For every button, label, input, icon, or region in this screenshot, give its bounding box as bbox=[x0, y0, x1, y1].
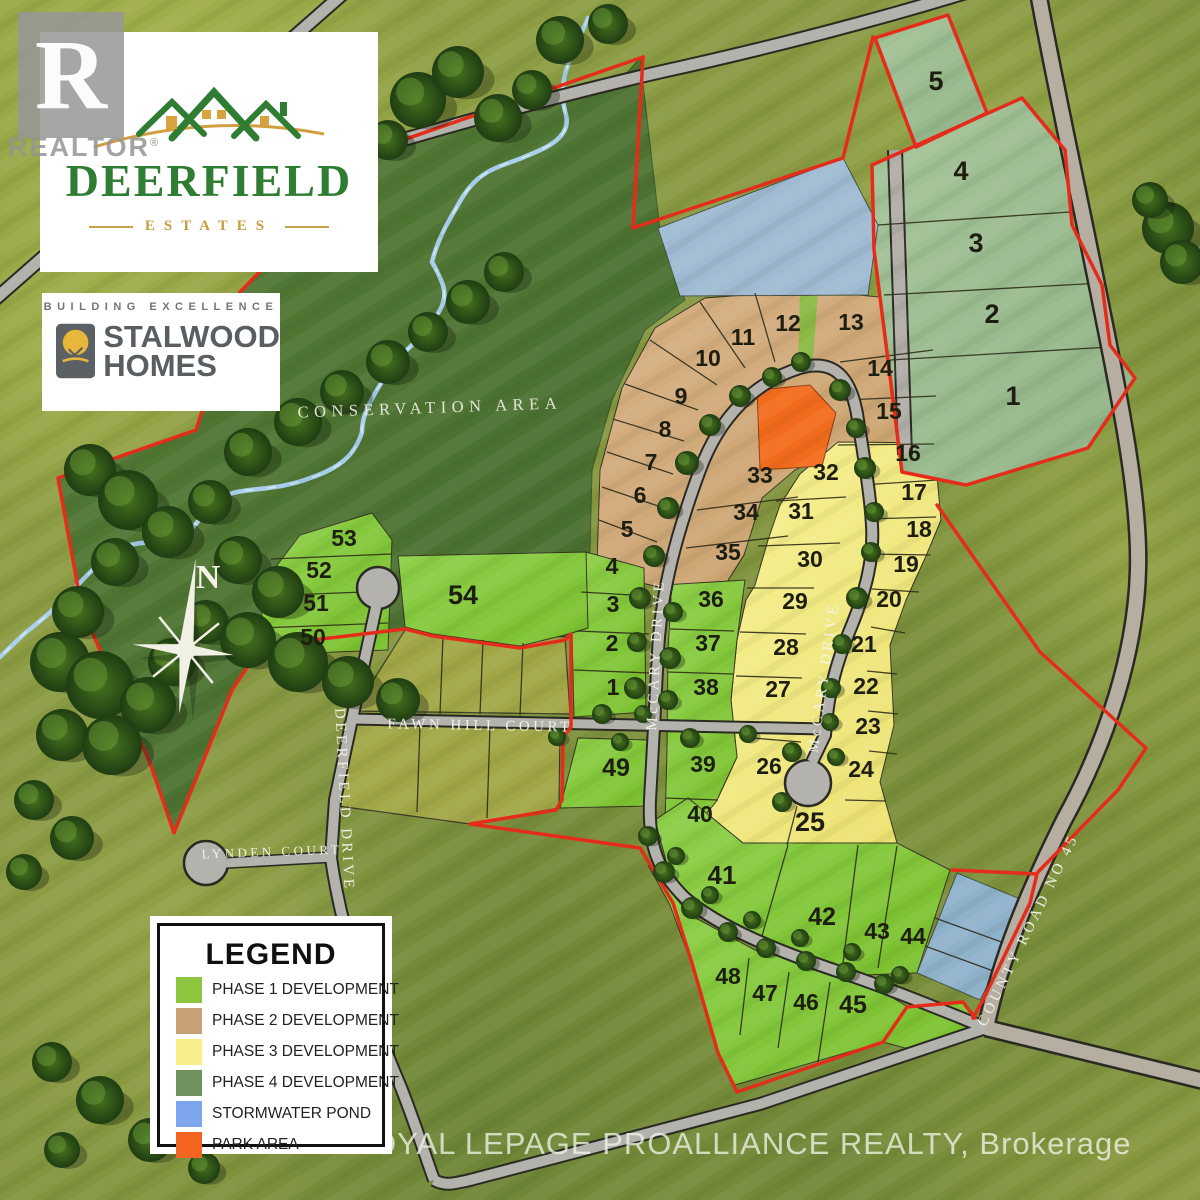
legend-item: STORMWATER POND bbox=[176, 1101, 382, 1127]
lot-number-phase3-29: 29 bbox=[782, 588, 808, 614]
legend-item: PARK AREA bbox=[176, 1132, 382, 1158]
lot-number-phase3-30: 30 bbox=[797, 546, 823, 572]
lot-number-phase2-14: 14 bbox=[867, 355, 893, 381]
legend-title: LEGEND bbox=[160, 938, 382, 972]
realtor-r-icon: R bbox=[35, 25, 107, 125]
lot-number-phase1-53: 53 bbox=[331, 525, 357, 551]
lot-number-phase1-47: 47 bbox=[752, 980, 778, 1006]
lot-number-phase2-9: 9 bbox=[675, 383, 688, 409]
lot-number-phase1-39: 39 bbox=[690, 751, 716, 777]
lot-number-phase1-4: 4 bbox=[606, 553, 619, 579]
lot-number-phase1-37: 37 bbox=[695, 630, 721, 656]
lot-number-phase2-7: 7 bbox=[645, 449, 658, 475]
lot-number-phase1-52: 52 bbox=[306, 557, 332, 583]
stalwood-tree-icon bbox=[56, 319, 95, 383]
lot-number-phase1-1: 1 bbox=[607, 674, 620, 700]
gold-rule-right bbox=[285, 226, 329, 228]
legend-item-label: STORMWATER POND bbox=[212, 1105, 371, 1123]
lot-number-phase2-10: 10 bbox=[695, 345, 721, 371]
lot-number-phase3-21: 21 bbox=[851, 631, 877, 657]
lot-number-phase4-2: 2 bbox=[984, 299, 999, 329]
legend-item: PHASE 2 DEVELOPMENT bbox=[176, 1008, 382, 1034]
lot-number-phase1-54: 54 bbox=[448, 580, 478, 610]
legend-border: LEGEND PHASE 1 DEVELOPMENTPHASE 2 DEVELO… bbox=[157, 923, 385, 1147]
lot-number-phase1-51: 51 bbox=[303, 590, 329, 616]
legend-swatch bbox=[176, 1039, 202, 1065]
legend-item: PHASE 1 DEVELOPMENT bbox=[176, 977, 382, 1003]
lot-number-phase3-28: 28 bbox=[773, 634, 799, 660]
lot-number-phase1-40: 40 bbox=[687, 801, 713, 827]
lot-number-phase1-48: 48 bbox=[715, 963, 741, 989]
realtor-logo: R bbox=[18, 12, 124, 138]
lot-number-phase3-24: 24 bbox=[848, 756, 874, 782]
lot-number-phase1-3: 3 bbox=[607, 591, 620, 617]
lot-number-phase1-50: 50 bbox=[300, 624, 326, 650]
lot-number-phase2-5: 5 bbox=[621, 516, 634, 542]
lot-number-phase2-6: 6 bbox=[634, 482, 647, 508]
legend-item: PHASE 3 DEVELOPMENT bbox=[176, 1039, 382, 1065]
lot-number-phase4-3: 3 bbox=[968, 228, 983, 258]
legend-swatch bbox=[176, 1070, 202, 1096]
legend-item-label: PHASE 3 DEVELOPMENT bbox=[212, 1043, 399, 1061]
lot-number-phase1-38: 38 bbox=[693, 674, 719, 700]
lot-number-phase3-19: 19 bbox=[893, 551, 919, 577]
lot-number-phase2-35: 35 bbox=[715, 539, 741, 565]
lot-number-phase2-8: 8 bbox=[659, 416, 672, 442]
legend-item-label: PARK AREA bbox=[212, 1136, 299, 1154]
lot-number-phase2-12: 12 bbox=[775, 310, 801, 336]
lot-number-phase4-1: 1 bbox=[1005, 381, 1020, 411]
lot-number-phase1-43: 43 bbox=[864, 918, 890, 944]
brokerage-credit: ROYAL LEPAGE PROALLIANCE REALTY, Brokera… bbox=[320, 1126, 1160, 1162]
legend: LEGEND PHASE 1 DEVELOPMENTPHASE 2 DEVELO… bbox=[150, 916, 392, 1154]
lot-number-phase3-31: 31 bbox=[788, 498, 814, 524]
legend-swatch bbox=[176, 1008, 202, 1034]
legend-item-label: PHASE 2 DEVELOPMENT bbox=[212, 1012, 399, 1030]
lot-number-phase2-13: 13 bbox=[838, 309, 864, 335]
road-label-fawn-hill-court: FAWN HILL COURT bbox=[387, 716, 573, 735]
stalwood-tagline: BUILDING EXCELLENCE bbox=[42, 301, 280, 313]
legend-item-label: PHASE 4 DEVELOPMENT bbox=[212, 1074, 399, 1092]
lot-number-phase2-33: 33 bbox=[747, 462, 773, 488]
lot-number-phase1-49: 49 bbox=[602, 754, 630, 782]
compass-north-label: N bbox=[196, 559, 221, 596]
lot-number-phase3-20: 20 bbox=[876, 586, 902, 612]
realtor-wordmark: REALTOR® bbox=[8, 132, 160, 163]
lot-number-phase3-25: 25 bbox=[795, 807, 825, 837]
lot-number-phase1-44: 44 bbox=[900, 923, 926, 949]
lot-number-phase1-2: 2 bbox=[606, 630, 619, 656]
lot-number-phase3-22: 22 bbox=[853, 673, 879, 699]
deerfield-subtitle: ESTATES bbox=[145, 218, 273, 235]
legend-swatch bbox=[176, 1101, 202, 1127]
stalwood-homes-logo-panel: BUILDING EXCELLENCE STALWOOD HOMES bbox=[42, 293, 280, 411]
lot-number-phase3-23: 23 bbox=[855, 713, 881, 739]
lot-number-phase1-41: 41 bbox=[708, 860, 737, 890]
legend-swatch bbox=[176, 1132, 202, 1158]
lot-number-phase2-11: 11 bbox=[731, 324, 756, 350]
lot-number-phase4-4: 4 bbox=[953, 156, 968, 186]
stalwood-name-line2: HOMES bbox=[103, 351, 280, 380]
site-plan-screenshot: FAWN HILL COURTDEERFIELD DRIVELYNDEN COU… bbox=[0, 0, 1200, 1200]
lot-number-phase1-45: 45 bbox=[839, 991, 867, 1019]
lot-number-phase2-15: 15 bbox=[876, 398, 902, 424]
stalwood-name-line1: STALWOOD bbox=[103, 322, 280, 351]
legend-item: PHASE 4 DEVELOPMENT bbox=[176, 1070, 382, 1096]
legend-swatch bbox=[176, 977, 202, 1003]
legend-item-label: PHASE 1 DEVELOPMENT bbox=[212, 981, 399, 999]
lot-number-phase3-17: 17 bbox=[901, 479, 927, 505]
lot-number-phase3-16: 16 bbox=[895, 440, 921, 466]
lot-number-phase1-42: 42 bbox=[808, 903, 836, 931]
lot-number-phase3-26: 26 bbox=[756, 753, 782, 779]
lot-number-phase3-27: 27 bbox=[765, 676, 791, 702]
lot-number-phase2-34: 34 bbox=[733, 499, 759, 525]
lot-number-phase3-32: 32 bbox=[813, 459, 839, 485]
lot-number-phase1-46: 46 bbox=[793, 989, 819, 1015]
lot-number-phase3-18: 18 bbox=[906, 516, 932, 542]
lot-number-phase1-36: 36 bbox=[698, 586, 724, 612]
gold-rule-left bbox=[89, 226, 133, 228]
legend-items: PHASE 1 DEVELOPMENTPHASE 2 DEVELOPMENTPH… bbox=[160, 977, 382, 1158]
lot-number-phase4-5: 5 bbox=[928, 66, 943, 96]
